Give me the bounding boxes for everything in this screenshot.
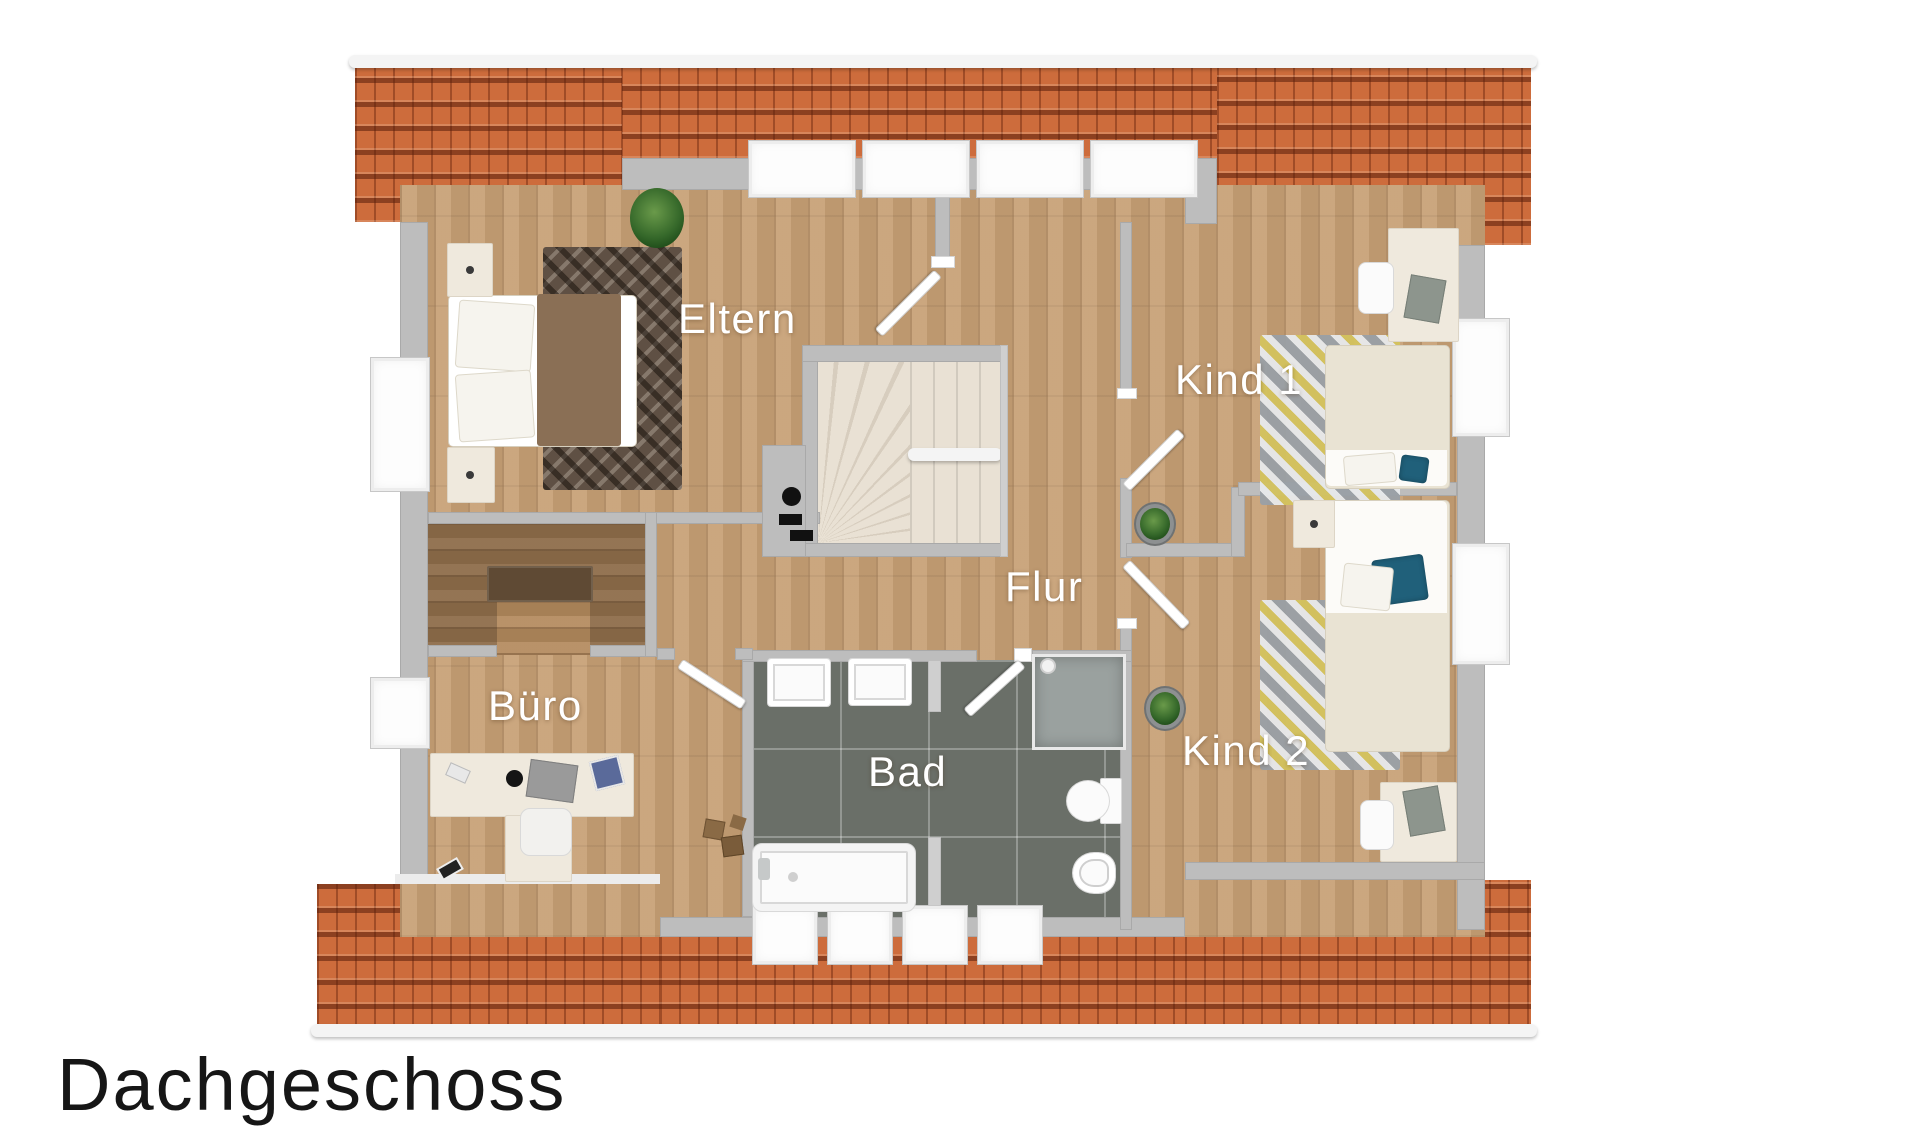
plant-kind1 bbox=[1140, 508, 1170, 540]
door-jamb-eltern bbox=[931, 256, 955, 268]
pillow-eltern-2 bbox=[455, 369, 536, 442]
nightstand-knob-kind2 bbox=[1310, 520, 1318, 528]
window-bottom-2 bbox=[827, 905, 893, 965]
plant-kind2 bbox=[1150, 692, 1180, 725]
chair-kind1 bbox=[1358, 262, 1394, 314]
pillow-teal-kind1 bbox=[1398, 454, 1429, 484]
monitor-buero bbox=[526, 759, 579, 803]
wall-buero-north-a bbox=[657, 648, 675, 660]
desk-lamp-buero bbox=[506, 770, 523, 787]
pillow-eltern-1 bbox=[455, 299, 536, 372]
closet-entry-strip bbox=[497, 602, 590, 655]
bath-faucet bbox=[758, 858, 770, 880]
door-jamb-kind1 bbox=[1117, 388, 1137, 399]
wall-stair-right bbox=[1000, 345, 1008, 557]
plant-eltern bbox=[630, 188, 684, 248]
room-label-kind1: Kind 1 bbox=[1175, 356, 1303, 404]
window-kind1-right bbox=[1452, 318, 1510, 437]
roof-ridge-top bbox=[349, 55, 1537, 68]
bed-kind2 bbox=[1325, 500, 1450, 752]
shower-head bbox=[1042, 660, 1054, 672]
stool-hall-2 bbox=[721, 835, 745, 858]
room-label-eltern: Eltern bbox=[678, 295, 797, 343]
bed-eltern bbox=[448, 295, 637, 447]
chimney-vent-1 bbox=[779, 514, 802, 525]
pillow-white-kind1 bbox=[1343, 452, 1397, 486]
chimney-flue bbox=[782, 487, 801, 506]
room-label-kind2: Kind 2 bbox=[1182, 727, 1310, 775]
room-label-flur: Flur bbox=[1005, 563, 1083, 611]
window-top-3 bbox=[976, 140, 1084, 198]
sink-2 bbox=[848, 658, 912, 706]
room-label-bad: Bad bbox=[868, 748, 947, 796]
door-jamb-kind2 bbox=[1117, 618, 1137, 629]
wall-exterior-bottom-right bbox=[1185, 862, 1485, 880]
window-eltern-left bbox=[370, 357, 430, 492]
wall-exterior-left bbox=[400, 222, 428, 880]
desk-pad-kind2 bbox=[1402, 785, 1445, 837]
staircase-handrail bbox=[908, 448, 1002, 461]
pillow-white-kind2 bbox=[1340, 563, 1394, 612]
wardrobe-closet bbox=[487, 566, 593, 602]
window-top-1 bbox=[748, 140, 856, 198]
bathtub bbox=[752, 843, 916, 912]
staircase-winder bbox=[818, 362, 910, 543]
wall-closet-bottom-left bbox=[428, 645, 497, 657]
room-label-buero: Büro bbox=[488, 682, 583, 730]
bathtub-drain bbox=[788, 872, 798, 882]
window-bottom-3 bbox=[902, 905, 968, 965]
wall-eltern-stub bbox=[935, 188, 950, 258]
roof-ridge-bottom bbox=[311, 1024, 1537, 1037]
floor-plan-page: Eltern Kind 1 Flur Kind 2 Büro Bad Dachg… bbox=[0, 0, 1920, 1134]
bidet bbox=[1072, 852, 1116, 894]
wall-closet-right bbox=[645, 512, 657, 657]
bed-runner-eltern bbox=[537, 294, 621, 446]
window-top-4 bbox=[1090, 140, 1198, 198]
wall-bath-sink-partition bbox=[928, 660, 941, 712]
sink-1 bbox=[767, 658, 831, 707]
toilet-bowl bbox=[1066, 780, 1110, 822]
nightstand-knob-1 bbox=[466, 266, 474, 274]
wall-bath-tub-partition bbox=[928, 837, 941, 915]
chimney-vent-2 bbox=[790, 530, 813, 541]
wall-buero-north-b bbox=[735, 648, 753, 660]
wall-kids-divider-west bbox=[1126, 543, 1238, 557]
nightstand-knob-2 bbox=[466, 471, 474, 479]
wall-hall-kids-upper bbox=[1120, 222, 1132, 395]
window-bottom-1 bbox=[752, 905, 818, 965]
chair-kind2 bbox=[1360, 800, 1394, 850]
chair-buero bbox=[520, 808, 572, 856]
wall-stair-top bbox=[802, 345, 1007, 362]
wall-kids-divider-jog bbox=[1231, 487, 1245, 557]
wall-stair-bottom bbox=[802, 543, 1007, 557]
window-buero-left bbox=[370, 677, 430, 749]
desk-pad-kind1 bbox=[1403, 274, 1446, 324]
window-top-2 bbox=[862, 140, 970, 198]
window-kind2-right bbox=[1452, 543, 1510, 665]
window-bottom-4 bbox=[977, 905, 1043, 965]
bed-kind1 bbox=[1325, 345, 1450, 489]
floor-title: Dachgeschoss bbox=[55, 1042, 572, 1134]
